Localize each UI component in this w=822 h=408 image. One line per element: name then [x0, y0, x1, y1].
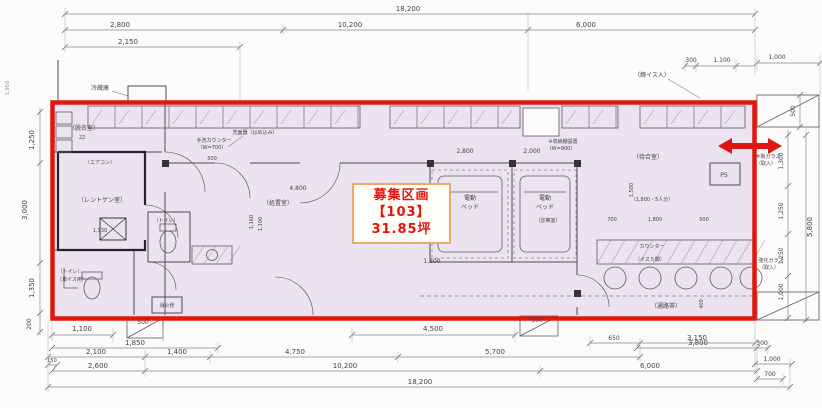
- recruit-label-line2: 【103】: [354, 205, 449, 222]
- dim-text: 5,700: [485, 348, 505, 356]
- dim-text: 400: [699, 299, 705, 309]
- top-table: [523, 108, 559, 136]
- room-label: （1,800・5人分）: [631, 196, 674, 203]
- dim-text: 1,800: [423, 258, 440, 265]
- dim-text: 4,500: [423, 325, 443, 333]
- dim-text: 5,800: [806, 217, 814, 237]
- dim-text: 1,000: [763, 356, 780, 363]
- room-label: 木製ガラス: [756, 153, 781, 160]
- dim-text: 700: [764, 371, 776, 378]
- room-label: （診察室）: [535, 217, 560, 224]
- dim-text: 1,950: [5, 81, 11, 95]
- dim-text: 2,600: [88, 362, 108, 370]
- dim-text: 3,000: [21, 200, 29, 220]
- dim-text: 2,150: [118, 38, 138, 46]
- room-label: （W=900）: [547, 146, 576, 152]
- room-label: （飾イス入）: [634, 71, 670, 79]
- dim-text: 3,800: [688, 339, 708, 347]
- room-label: （トイレ）: [153, 218, 178, 224]
- room-label: ベッド: [461, 204, 479, 211]
- dim-text: 1,800: [648, 217, 662, 223]
- room-label: （エアコン）: [85, 160, 115, 166]
- dim-text: 18,200: [408, 378, 433, 386]
- room-label: ※収納棚設置: [548, 138, 577, 145]
- dim-text: 1,160: [249, 215, 255, 229]
- dim-text: 6,000: [576, 21, 596, 29]
- room-label: カウンター: [639, 243, 664, 250]
- dim-text: 1,350: [28, 278, 36, 298]
- dim-text: 1,000: [768, 54, 785, 61]
- leader-line: [112, 91, 128, 96]
- fridge-box: [128, 86, 166, 102]
- leader-line: [668, 79, 700, 98]
- dim-text: 300: [756, 340, 768, 347]
- room-label: （通路帯）: [651, 302, 681, 310]
- room-label: （脱衣室）: [69, 124, 99, 132]
- dim-text: 1,100: [258, 217, 264, 231]
- dim-text: 1,250: [778, 202, 785, 219]
- room-label: （待合室）: [633, 153, 663, 161]
- room-label: ベッド: [536, 204, 554, 211]
- room-label: PS: [720, 172, 728, 179]
- dim-text: 500: [531, 317, 543, 324]
- room-label: 電動: [539, 194, 551, 202]
- dim-text: 4,750: [285, 348, 305, 356]
- room-label: （車イス用）: [57, 276, 87, 283]
- dim-text: 1,400: [167, 348, 187, 356]
- dim-text: 1,000: [778, 283, 785, 300]
- room-label: （取入）: [756, 161, 776, 167]
- recruit-label-box: 募集区画 【103】 31.85坪: [352, 183, 451, 244]
- dim-text: 1,500: [629, 183, 635, 197]
- dim-text: 18,200: [396, 5, 421, 13]
- room-label: （W=700）: [198, 145, 227, 151]
- dim-text: 1,100: [72, 325, 92, 333]
- room-label: 冷蔵庫: [91, 84, 109, 92]
- dim-text: 150: [47, 358, 57, 364]
- room-label: （レントゲン室）: [78, 196, 126, 204]
- recruit-label-line3: 31.85坪: [354, 222, 449, 239]
- recruit-label-line1: 募集区画: [354, 188, 449, 205]
- floor-plan-page: 18,2002,80010,2006,0002,1503001,1001,000…: [0, 0, 822, 408]
- dim-text: 500: [137, 319, 149, 326]
- dim-text: 300: [685, 57, 697, 64]
- dim-text: 2,800: [456, 148, 473, 155]
- dim-text: 2,000: [523, 148, 540, 155]
- room-label: 消火栓: [159, 302, 174, 309]
- room-label: 手洗カウンター: [196, 137, 231, 144]
- dim-text: 650: [608, 335, 620, 342]
- room-label: 22: [79, 135, 85, 141]
- dim-text: 10,200: [338, 21, 363, 29]
- room-label: （処置室）: [263, 199, 293, 207]
- dim-text: 2,100: [86, 348, 106, 356]
- room-label: （トイレ）: [57, 269, 82, 275]
- dim-text: 500: [207, 156, 217, 162]
- dim-text: 500: [699, 217, 709, 223]
- dim-text: 2,800: [110, 21, 130, 29]
- dim-text: 700: [607, 217, 617, 223]
- dim-text: 1,930: [93, 228, 107, 234]
- dim-text: 200: [26, 318, 33, 330]
- room-label: 強化ガラス: [759, 257, 784, 264]
- dim-text: 1,850: [125, 339, 145, 347]
- dim-text: 10,200: [333, 362, 358, 370]
- dim-text: 500: [790, 105, 797, 117]
- dim-text: 1,100: [713, 57, 730, 64]
- room-label: （取入）: [759, 265, 779, 271]
- dim-text: 1,250: [28, 130, 36, 150]
- dim-text: 6,000: [640, 362, 660, 370]
- room-label: （イス５脚）: [635, 256, 665, 263]
- dim-text: 4,800: [289, 185, 306, 192]
- room-label: 電動: [464, 194, 476, 202]
- room-label: 洗面器（はめ込み）: [232, 129, 277, 136]
